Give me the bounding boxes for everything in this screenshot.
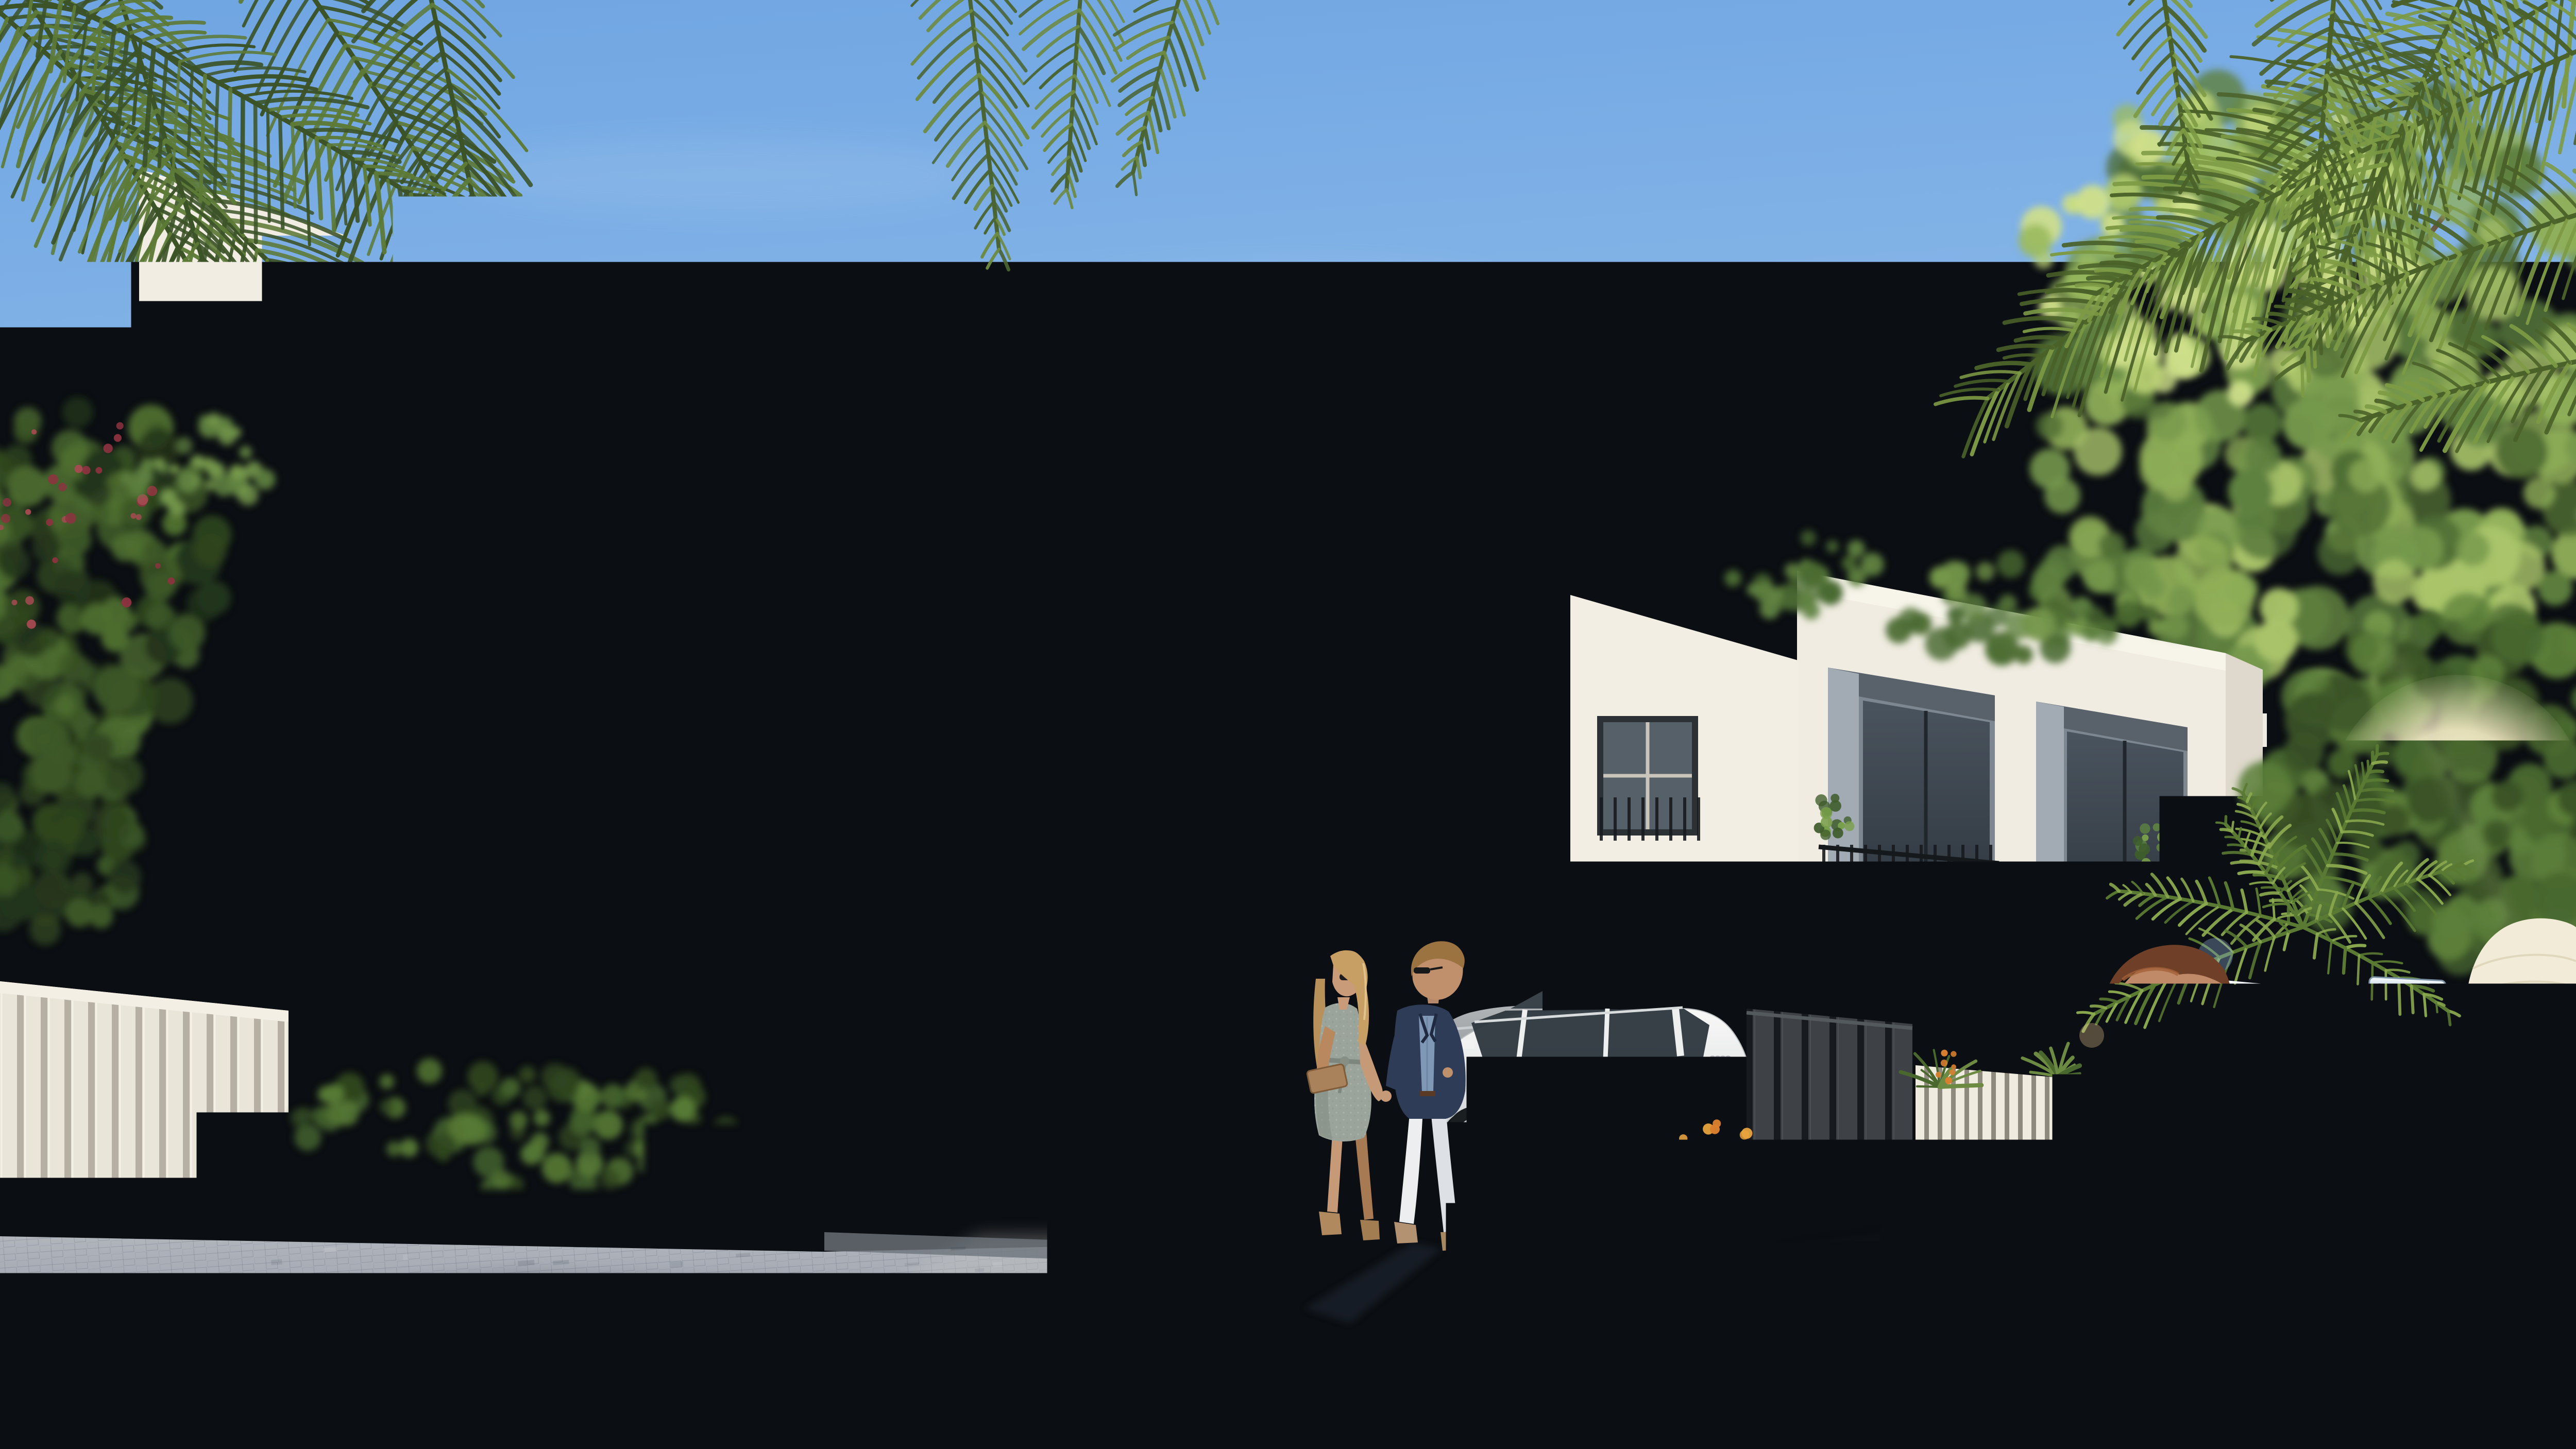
balcony-wall-lamp (1394, 592, 1402, 610)
sunglasses (1414, 967, 1430, 974)
end-wall (1544, 398, 1658, 913)
white-slat-fence (0, 981, 289, 1263)
wing-window-2 (1729, 734, 1799, 871)
stone-garden-wall (1953, 950, 2076, 1074)
scene-render: 41424 (0, 0, 2576, 1449)
balcony-bay-1 (851, 484, 1209, 908)
balcony-bay-2 (1258, 518, 1547, 935)
right-balcony-bay-1 (1819, 668, 1999, 952)
large-corner-window (295, 481, 611, 924)
suv-mirror (1461, 1039, 1475, 1049)
entry-lamp (683, 885, 697, 910)
plate-number: 41424 (1702, 1082, 1737, 1097)
balcony-wall-lamp (1030, 559, 1039, 577)
suv-taillight (1638, 1062, 1656, 1075)
rearview-mirror (2368, 977, 2446, 1007)
license-plate: 41424 (1699, 1080, 1737, 1098)
dark-slat-gate (1747, 1009, 1912, 1218)
held-hands (1380, 1090, 1392, 1102)
